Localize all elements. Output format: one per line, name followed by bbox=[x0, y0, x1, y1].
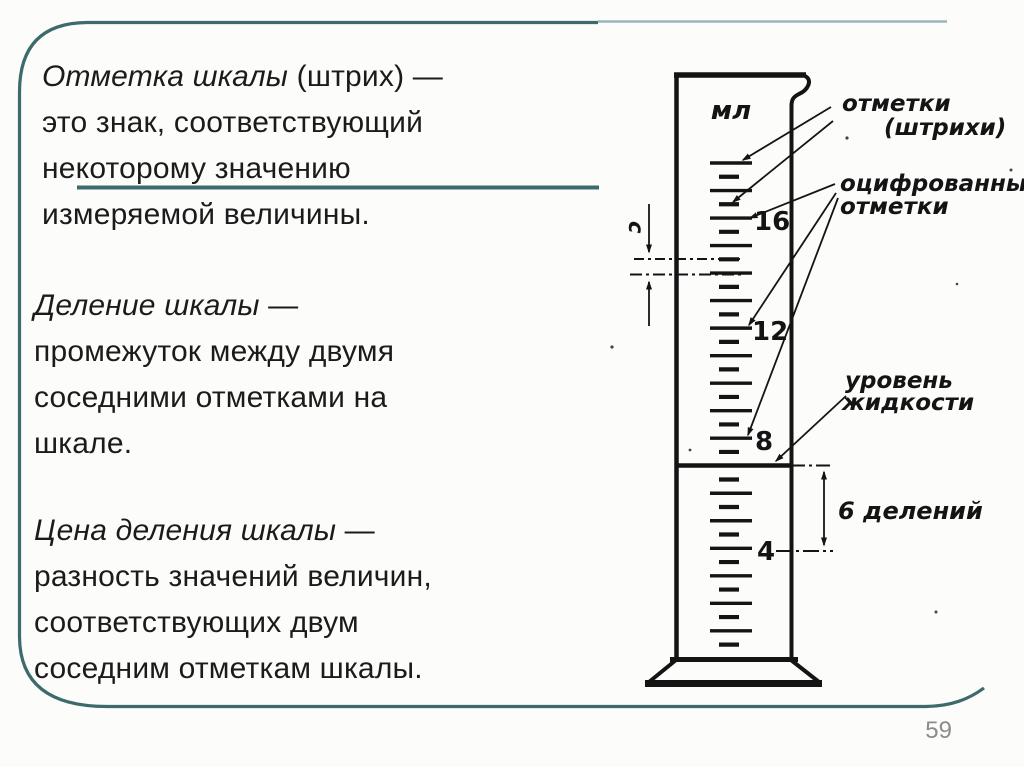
definition-line: промежуток между двумя bbox=[34, 329, 394, 375]
cylinder-spout bbox=[792, 76, 810, 106]
cylinder-outline bbox=[674, 73, 809, 659]
slide: мл отметки (штрихи) оцифрованные отметки… bbox=[0, 0, 1024, 767]
arrow-liquid-level bbox=[776, 396, 846, 461]
definition-line: шкале. bbox=[34, 421, 394, 467]
definition-text: (штрих) — bbox=[288, 60, 443, 93]
cylinder-base bbox=[645, 660, 822, 684]
definition-scale-mark: Отметка шкалы (штрих) — это знак, соотве… bbox=[42, 54, 443, 238]
numbered-marks-label-line2: отметки bbox=[840, 194, 949, 220]
definition-line: Отметка шкалы (штрих) — bbox=[42, 54, 443, 100]
definition-text: — bbox=[260, 289, 299, 322]
scale-number-4: 4 bbox=[757, 537, 775, 567]
definition-line: Деление шкалы — bbox=[34, 283, 394, 329]
divisions-dimension bbox=[776, 472, 833, 551]
measuring-cylinder-diagram: мл отметки (штрихи) оцифрованные отметки… bbox=[610, 73, 1024, 684]
scale-number-16: 16 bbox=[754, 207, 790, 237]
definition-term: Деление шкалы bbox=[34, 289, 260, 322]
marks-label-line2: (штрихи) bbox=[884, 115, 1006, 141]
definition-line: соседним отметкам шкалы. bbox=[34, 646, 432, 692]
definition-line: некоторому значению bbox=[42, 146, 443, 192]
unit-label: мл bbox=[711, 96, 751, 126]
definition-text: — bbox=[336, 514, 375, 547]
definition-line: это знак, соответствующий bbox=[42, 100, 443, 146]
definition-line: измеряемой величины. bbox=[42, 192, 443, 238]
marks-label-line1: отметки bbox=[842, 91, 951, 117]
division-size-label: с bbox=[624, 221, 648, 234]
definition-term: Отметка шкалы bbox=[42, 60, 288, 93]
divisions-label: 6 делений bbox=[838, 497, 983, 525]
liquid-level-label-line2: жидкости bbox=[841, 390, 974, 416]
definition-line: Цена деления шкалы — bbox=[34, 508, 432, 554]
definition-division-value: Цена деления шкалы — разность значений в… bbox=[34, 508, 432, 692]
definition-line: разность значений величин, bbox=[34, 554, 432, 600]
scale-number-8: 8 bbox=[755, 427, 773, 457]
definition-scale-division: Деление шкалы — промежуток между двумя с… bbox=[34, 283, 394, 467]
scale-tick-marks bbox=[710, 163, 752, 645]
definition-line: соседними отметками на bbox=[34, 375, 394, 421]
page-number: 59 bbox=[925, 717, 952, 745]
scale-number-12: 12 bbox=[752, 317, 788, 347]
definition-line: соответствующих двум bbox=[34, 600, 432, 646]
definition-term: Цена деления шкалы bbox=[34, 514, 336, 547]
